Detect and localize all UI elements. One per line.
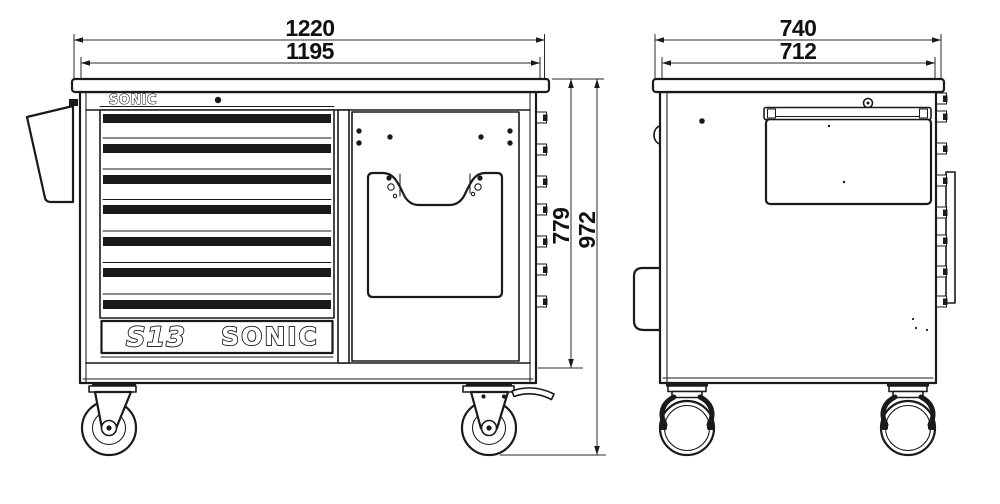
front-view: SONIC S13 SONIC [27,15,606,455]
side-document-box [764,99,931,205]
drawer-handle [103,144,331,153]
dim-label-body-height: 779 [548,208,574,245]
dim-label-worktop-depth: 712 [780,38,817,64]
front-width-dimensions: 1220 1195 [74,15,545,78]
side-depth-dimensions: 740 712 [655,15,941,78]
side-handle [27,99,78,202]
drawer-handle [103,175,331,184]
hinge-tabs-side [937,93,956,307]
badge-model-logo: S13 [126,322,186,353]
drawer-handle [103,237,331,246]
keyhole-icon [215,97,221,103]
caster-wheel [881,401,935,455]
badge-panel: S13 SONIC [101,321,333,357]
drawer-handle [103,205,331,214]
worktop-side [653,79,944,92]
caster-front-left [82,383,136,455]
side-bracket [634,268,660,330]
drawer-stack [100,110,334,318]
box-lid [764,108,931,120]
caster-side-left [660,383,714,455]
brake-lever [512,388,554,400]
hinge-tabs-front [537,112,548,307]
door-hole [507,128,512,133]
side-door-panel [352,112,519,361]
caster-wheel [660,401,714,455]
caster-side-right [881,383,935,455]
door-hole [356,140,361,145]
worktop-front [72,79,549,92]
dim-label-worktop-width: 1195 [286,38,335,64]
technical-drawing-page: SONIC S13 SONIC [0,0,1000,504]
caster-front-right [462,383,554,455]
drawer-handle [103,268,331,277]
handle-mount [69,99,78,106]
tool-trolley-drawing: SONIC S13 SONIC [0,0,1000,504]
center-post [338,110,349,363]
drawer-handle [103,114,331,123]
dim-label-overall-height: 972 [574,212,600,249]
door-hole [356,128,361,133]
door-hole [507,140,512,145]
drawer-handle [103,300,331,309]
bolt-hole [699,118,705,124]
header-brand-logo: SONIC [109,93,157,108]
screw-icon [386,175,391,180]
screw-icon [477,175,482,180]
door-hole [478,134,483,139]
side-view: 740 712 [634,15,955,455]
badge-brand-logo: SONIC [221,322,319,351]
door-hole [387,134,392,139]
